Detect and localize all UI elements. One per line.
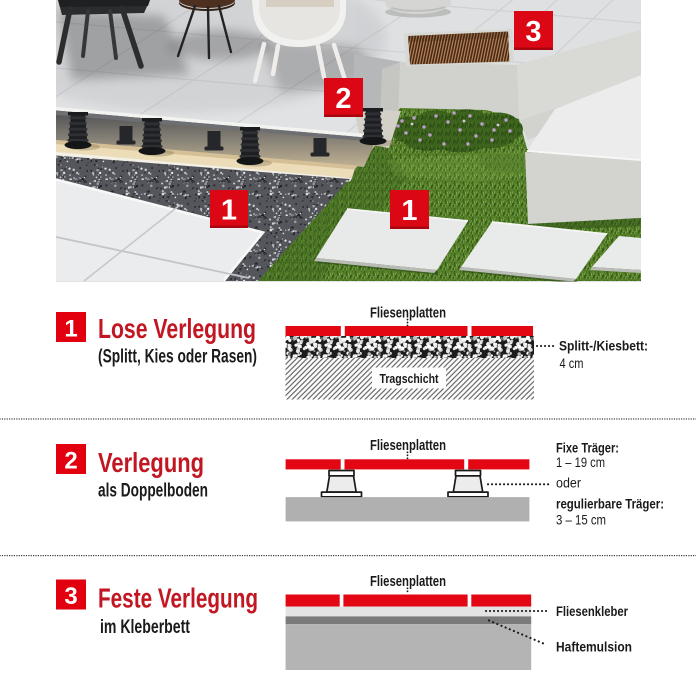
svg-text:Fliesenplatten: Fliesenplatten bbox=[370, 573, 446, 590]
svg-text:Lose Verlegung: Lose Verlegung bbox=[98, 313, 256, 344]
svg-text:(Splitt, Kies oder Rasen): (Splitt, Kies oder Rasen) bbox=[98, 347, 257, 368]
svg-text:Verlegung: Verlegung bbox=[98, 447, 204, 478]
svg-text:Fliesenplatten: Fliesenplatten bbox=[370, 304, 446, 321]
svg-text:1: 1 bbox=[221, 194, 237, 226]
svg-text:1: 1 bbox=[64, 316, 77, 343]
svg-text:Fliesenkleber: Fliesenkleber bbox=[556, 603, 628, 619]
svg-text:Fliesenplatten: Fliesenplatten bbox=[370, 437, 446, 454]
svg-text:oder: oder bbox=[556, 474, 581, 490]
svg-text:Splitt-/Kiesbett:: Splitt-/Kiesbett: bbox=[559, 338, 648, 354]
svg-text:1 – 19 cm: 1 – 19 cm bbox=[556, 454, 605, 470]
svg-text:Feste Verlegung: Feste Verlegung bbox=[98, 582, 258, 613]
svg-text:Haftemulsion: Haftemulsion bbox=[556, 639, 632, 655]
svg-text:2: 2 bbox=[64, 448, 77, 475]
svg-text:3 – 15 cm: 3 – 15 cm bbox=[556, 511, 606, 527]
svg-text:regulierbare Träger:: regulierbare Träger: bbox=[556, 496, 664, 512]
svg-text:4 cm: 4 cm bbox=[560, 355, 584, 371]
svg-text:Tragschicht: Tragschicht bbox=[380, 371, 440, 386]
svg-text:im Kleberbett: im Kleberbett bbox=[100, 617, 190, 638]
svg-text:2: 2 bbox=[335, 83, 351, 115]
svg-text:1: 1 bbox=[401, 195, 417, 227]
svg-text:3: 3 bbox=[64, 583, 77, 610]
svg-text:3: 3 bbox=[525, 16, 541, 48]
svg-text:als Doppelboden: als Doppelboden bbox=[98, 480, 208, 501]
